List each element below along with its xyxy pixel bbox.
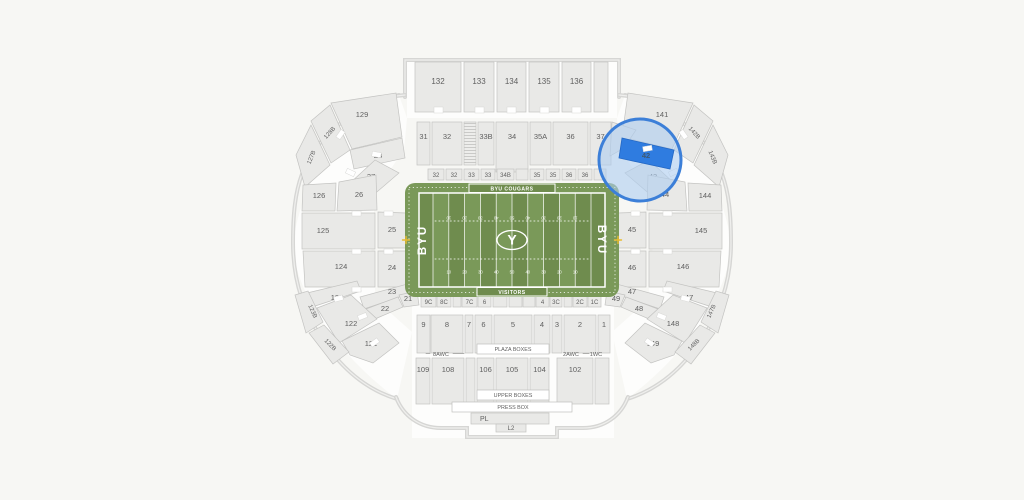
- aisle-notch: [663, 211, 672, 216]
- aisle-notch: [434, 107, 443, 113]
- section-l2-label: L2: [508, 426, 515, 432]
- section-label: 36: [566, 132, 574, 141]
- section-label: 9: [421, 320, 425, 329]
- section[interactable]: [530, 122, 551, 165]
- section-label: 33: [485, 173, 492, 179]
- section-label: 6: [481, 320, 485, 329]
- aisle-notch: [663, 249, 672, 254]
- aisle-notch: [352, 287, 361, 292]
- section-label: 144: [699, 191, 712, 200]
- selected-section-label: 42: [642, 151, 650, 160]
- section-label: 34: [508, 132, 516, 141]
- section-label: 133: [472, 77, 486, 86]
- section[interactable]: [466, 358, 475, 404]
- section[interactable]: [516, 169, 528, 180]
- section-label: 102: [569, 365, 582, 374]
- yard-number: 30: [541, 270, 546, 275]
- section-label: 7: [467, 320, 471, 329]
- section-label: 32: [433, 173, 440, 179]
- aisle-notch: [352, 211, 361, 216]
- section[interactable]: [562, 62, 591, 112]
- section-label: 145: [695, 226, 708, 235]
- section[interactable]: [432, 122, 462, 165]
- section-label: 31: [419, 132, 427, 141]
- section-label: 25: [388, 225, 396, 234]
- aisle-notch: [631, 249, 640, 254]
- section-label: 141: [656, 110, 669, 119]
- section-label: 7C: [466, 300, 474, 306]
- center-logo-y: Y: [507, 232, 517, 248]
- section-label: 48: [635, 304, 643, 313]
- section-label: 8C: [440, 300, 448, 306]
- section-label: 45: [628, 225, 636, 234]
- yard-number: 30: [541, 216, 546, 221]
- section-label: 146: [677, 262, 690, 271]
- field-stripe: [575, 193, 591, 287]
- home-team-label: BYU COUGARS: [490, 187, 533, 193]
- section[interactable]: [415, 62, 461, 112]
- yard-number: 40: [525, 216, 530, 221]
- section-label: 26: [355, 190, 363, 199]
- section-label: 33B: [479, 132, 492, 141]
- upper-boxes-band-label: UPPER BOXES: [494, 393, 533, 399]
- section-label: 106: [479, 365, 492, 374]
- yard-number: 20: [556, 216, 561, 221]
- section[interactable]: [529, 62, 559, 112]
- section[interactable]: [464, 62, 494, 112]
- section[interactable]: [478, 122, 494, 165]
- section-label: 135: [537, 77, 551, 86]
- aisle-notch: [475, 107, 484, 113]
- yard-number: 10: [573, 270, 578, 275]
- section-label: 32: [443, 132, 451, 141]
- section-label: 23: [388, 287, 396, 296]
- section-label: 8: [445, 320, 449, 329]
- section-label: 4: [540, 320, 544, 329]
- section-label: 134: [505, 77, 519, 86]
- section-label: 34B: [500, 173, 511, 179]
- yard-number: 20: [462, 216, 467, 221]
- yard-number: 40: [525, 270, 530, 275]
- section-label: 24: [388, 263, 396, 272]
- section-label: 46: [628, 263, 636, 272]
- section-label: 109: [417, 365, 430, 374]
- plaza-boxes-band-label: PLAZA BOXES: [495, 347, 532, 353]
- stadium-seat-map: 132133134135136313233B3435A3637323233333…: [0, 0, 1024, 500]
- aisle-notch: [384, 249, 393, 254]
- section-label: 3: [555, 320, 559, 329]
- section[interactable]: [595, 358, 609, 404]
- section-label: 36: [582, 173, 589, 179]
- yard-number: 10: [446, 216, 451, 221]
- section-label: 47: [628, 287, 636, 296]
- section-label: 36: [566, 173, 573, 179]
- yard-number: 40: [493, 216, 498, 221]
- section-label: 35: [534, 173, 541, 179]
- section[interactable]: [553, 122, 588, 165]
- section-label: 2: [578, 320, 582, 329]
- section-label: 148: [667, 319, 680, 328]
- wheelchair-section-label: 8AWC: [433, 352, 449, 358]
- section-label: 5: [511, 320, 515, 329]
- aisle-notch: [572, 107, 581, 113]
- aisle-notch: [663, 287, 672, 292]
- press-box-band-label: PRESS BOX: [497, 405, 529, 411]
- section[interactable]: [497, 62, 526, 112]
- section-label: 1: [602, 320, 606, 329]
- section-label: 9C: [425, 300, 433, 306]
- section-label: 32: [451, 173, 458, 179]
- section-label: 3C: [552, 300, 560, 306]
- seating-chart-page: 132133134135136313233B3435A3637323233333…: [0, 0, 1024, 500]
- section-label: 105: [506, 365, 519, 374]
- yard-number: 10: [572, 216, 577, 221]
- section-pl-label: PL: [480, 416, 489, 423]
- aisle-notch: [352, 249, 361, 254]
- section[interactable]: [496, 122, 528, 172]
- endzone-text-right: BYU: [595, 225, 607, 255]
- section-label: 132: [431, 77, 445, 86]
- aisle-notch: [507, 107, 516, 113]
- section-label: 125: [317, 226, 330, 235]
- yard-number: 20: [462, 270, 467, 275]
- yard-number: 50: [509, 216, 514, 221]
- section-label: 33: [468, 173, 475, 179]
- section-label: 35A: [534, 132, 547, 141]
- section-label: 104: [533, 365, 546, 374]
- yard-number: 30: [478, 270, 483, 275]
- aisle-notch: [384, 211, 393, 216]
- yard-number: 20: [557, 270, 562, 275]
- endzone-text-left: BYU: [417, 225, 429, 255]
- yard-number: 30: [477, 216, 482, 221]
- section-label: 122: [345, 319, 358, 328]
- section-label: 124: [335, 262, 348, 271]
- section-label: 35: [550, 173, 557, 179]
- section-label: 2C: [576, 300, 584, 306]
- yard-number: 50: [510, 270, 515, 275]
- yard-number: 10: [446, 270, 451, 275]
- section-145[interactable]: [649, 213, 722, 249]
- section-125[interactable]: [302, 213, 375, 249]
- section-label: 1C: [591, 300, 599, 306]
- aisle-notch: [540, 107, 549, 113]
- visitor-label: VISITORS: [498, 290, 525, 296]
- section[interactable]: [594, 62, 608, 112]
- section-label: 108: [442, 365, 455, 374]
- wheelchair-section-label: 2AWC: [563, 352, 579, 358]
- stairs-strip: [464, 122, 476, 165]
- section-label: 22: [381, 304, 389, 313]
- yard-number: 40: [494, 270, 499, 275]
- section-label: 129: [356, 110, 369, 119]
- section[interactable]: [417, 122, 430, 165]
- wheelchair-section-label: 1WC: [590, 352, 602, 358]
- section-label: 136: [570, 77, 584, 86]
- section-label: 126: [313, 191, 326, 200]
- aisle-notch: [631, 211, 640, 216]
